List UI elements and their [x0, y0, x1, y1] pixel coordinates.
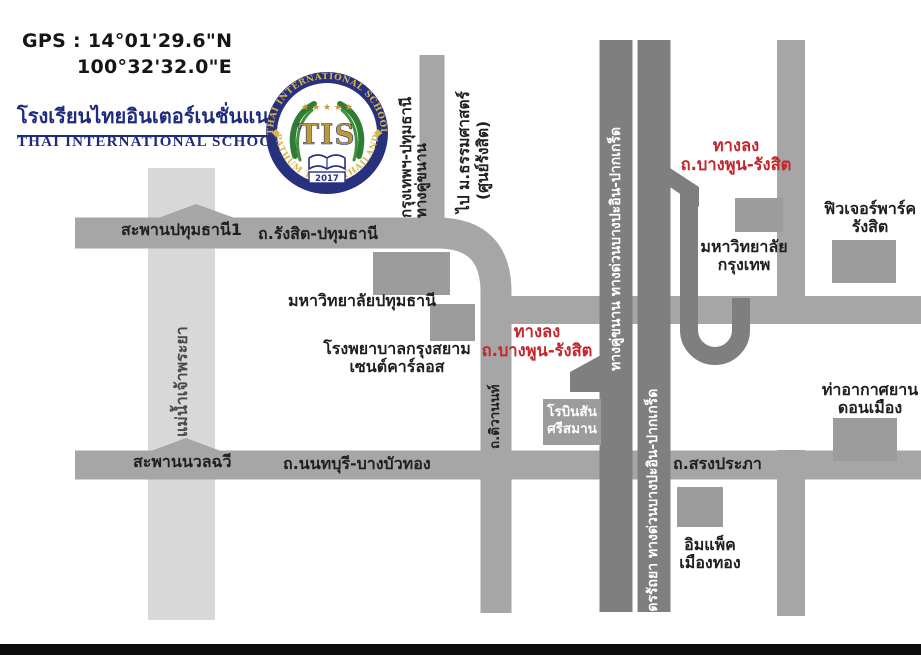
exit-label-line1: ทางลง — [482, 322, 593, 341]
road-tiwanon-label: ถ.ติวานนท์ — [483, 384, 505, 449]
don-mueang-label: ท่าอากาศยาน ดอนเมือง — [822, 381, 918, 417]
map-page: GPS : 14°01'29.6"N 100°32'32.0"E โรงเรีย… — [0, 0, 921, 655]
hospital-label-line1: โรงพยาบาลกรุงสยาม — [323, 340, 471, 358]
bangkok-university-building — [735, 198, 783, 232]
pathumthani-university-label: มหาวิทยาลัยปทุมธานี — [288, 292, 436, 310]
exit-label-line1: ทางลง — [681, 136, 792, 155]
hospital-label-line2: เซนต์คาร์ลอส — [323, 358, 471, 376]
road-nonthaburi-label: ถ.นนทบุรี-บางบัวทอง — [283, 455, 431, 473]
hospital-label: โรงพยาบาลกรุงสยาม เซนต์คาร์ลอส — [323, 340, 471, 376]
robinson-label-line2: ศรีสมาน — [543, 421, 601, 438]
future-park-line2: รังสิต — [824, 218, 916, 236]
bangkok-university-line1: มหาวิทยาลัย — [700, 238, 787, 256]
impact-building — [677, 487, 723, 527]
exit-ramp-south — [570, 355, 601, 392]
logo-monogram: TIS — [298, 118, 355, 151]
bridge-pathumthani-label: สะพานปทุมธานี1 — [121, 221, 242, 239]
future-park-line1: ฟิวเจอร์พาร์ค — [824, 200, 916, 218]
road-rangsit-pathumthani-label: ถ.รังสิต-ปทุมธานี — [258, 225, 378, 243]
logo-year: 2017 — [315, 174, 339, 184]
parallel-road-label-line2: ทางคู่ขนาน — [409, 143, 433, 218]
impact-label: อิมแพ็ค เมืองทอง — [679, 536, 740, 572]
don-mueang-line1: ท่าอากาศยาน — [822, 381, 918, 399]
don-mueang-building — [833, 418, 897, 461]
future-park-building — [832, 240, 896, 283]
impact-line2: เมืองทอง — [679, 554, 740, 572]
frontage-road-label: ทางคู่ขนาน ทางด่วนบางปะอิน-ปากเกร็ด — [605, 127, 627, 371]
bridge-nuanchawee-label: สะพานนวลฉวี — [133, 453, 231, 471]
exit-label-line2: ถ.บางพูน-รังสิต — [482, 341, 593, 360]
hospital-building — [430, 304, 475, 341]
bottom-bar — [0, 644, 921, 655]
expressway-label: อุดรรัถยา ทางด่วนบางปะอิน-ปากเกร็ด — [642, 389, 664, 620]
future-park-label: ฟิวเจอร์พาร์ค รังสิต — [824, 200, 916, 236]
robinson-label-line1: โรบินสัน — [543, 404, 601, 421]
river-label: แม่น้ำเจ้าพระยา — [170, 326, 195, 437]
logo-stars-icon: ★ ★ ★ ★ ★ — [301, 103, 353, 113]
school-logo: THAI INTERNATIONAL SCHOOL PATHUM THANI T… — [262, 68, 392, 198]
exit-bangphun-rangsit-label-north: ทางลง ถ.บางพูน-รังสิต — [681, 136, 792, 174]
robinson-srisaman-box: โรบินสัน ศรีสมาน — [543, 399, 601, 445]
bangkok-university-line2: กรุงเทพ — [700, 256, 787, 274]
gps-coordinates-line1: GPS : 14°01'29.6"N — [22, 30, 232, 52]
gps-coordinates-line2: 100°32'32.0"E — [77, 56, 232, 78]
don-mueang-line2: ดอนเมือง — [822, 399, 918, 417]
to-thammasat-label-line2: (ศูนย์รังสิต) — [470, 121, 495, 200]
pathumthani-university-building — [373, 252, 450, 295]
exit-label-line2: ถ.บางพูน-รังสิต — [681, 155, 792, 174]
road-songprapha-label: ถ.สรงประภา — [673, 455, 762, 473]
impact-line1: อิมแพ็ค — [679, 536, 740, 554]
school-name-english: THAI INTERNATIONAL SCHOOL — [17, 134, 283, 151]
bangkok-university-label: มหาวิทยาลัย กรุงเทพ — [700, 238, 787, 274]
exit-bangphun-rangsit-label-south: ทางลง ถ.บางพูน-รังสิต — [482, 322, 593, 360]
